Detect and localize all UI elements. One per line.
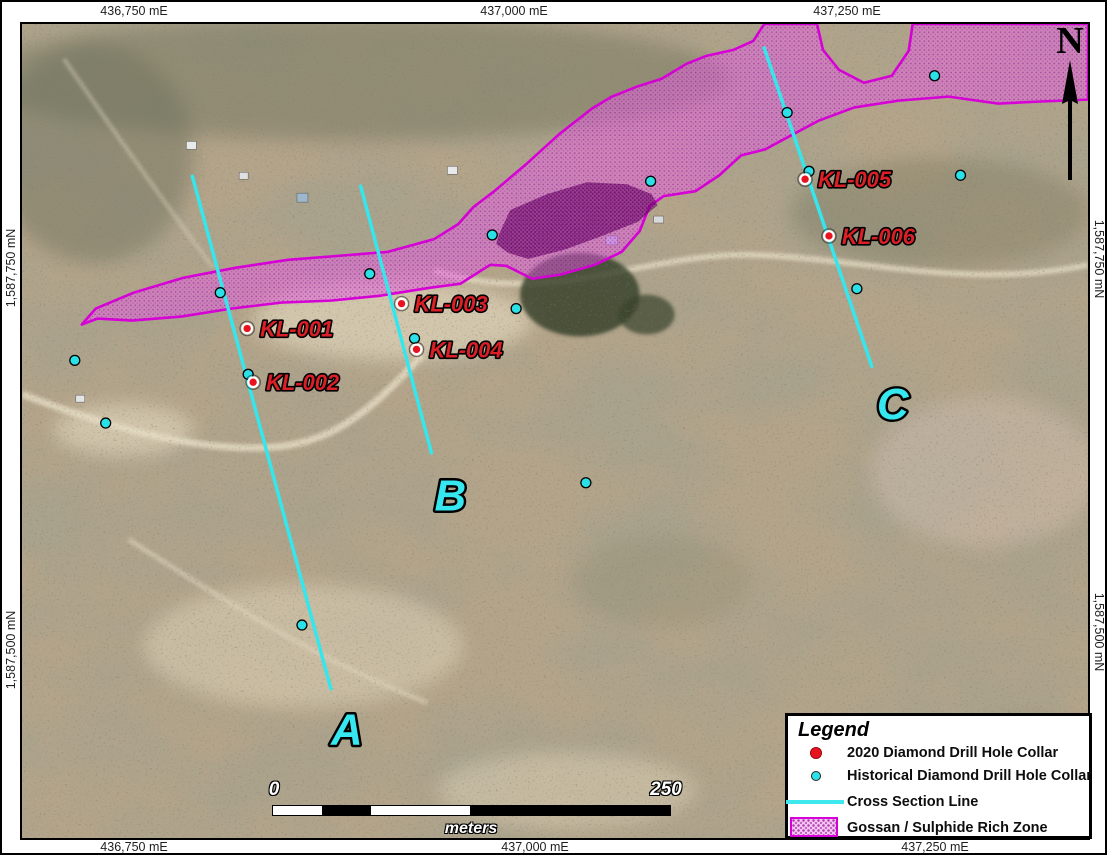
drill-hole-label-KL-004: KL-004 <box>429 337 502 362</box>
drill-hole-location-map: 436,750 mE 437,000 mE 437,250 mE 436,750… <box>0 0 1107 855</box>
historical-drill-hole <box>511 304 521 314</box>
historical-drill-hole <box>297 620 307 630</box>
historical-drill-hole <box>930 71 940 81</box>
drill-hole-label-KL-001: KL-001 <box>260 316 333 341</box>
historical-drill-hole <box>782 108 792 118</box>
grid-label-right-2: 1,587,500 mN <box>1092 593 1106 672</box>
drill-hole-label-KL-002: KL-002 <box>266 370 339 395</box>
drill-hole-KL-006 <box>824 231 834 241</box>
legend-title: Legend <box>798 719 869 742</box>
section-label-C: C <box>877 380 910 429</box>
drill-hole-label-KL-003: KL-003 <box>415 292 488 317</box>
grid-label-top-3: 437,250 mE <box>813 4 880 18</box>
drill-hole-KL-002 <box>248 377 258 387</box>
scale-zero-label: 0 <box>239 779 309 801</box>
legend: Legend 2020 Diamond Drill Hole Collar Hi… <box>785 713 1092 839</box>
legend-item-label: Historical Diamond Drill Hole Collar <box>847 768 1092 784</box>
grid-label-bottom-3: 437,250 mE <box>901 840 968 854</box>
grid-label-bottom-2: 437,000 mE <box>501 840 568 854</box>
grid-label-top-1: 436,750 mE <box>100 4 167 18</box>
legend-item-label: 2020 Diamond Drill Hole Collar <box>847 745 1058 761</box>
legend-item-label: Gossan / Sulphide Rich Zone <box>847 820 1048 836</box>
scale-bar-segments <box>272 805 671 816</box>
legend-item-2020-collar: 2020 Diamond Drill Hole Collar <box>788 742 1089 764</box>
historical-drill-hole <box>70 355 80 365</box>
legend-item-cross-section: Cross Section Line <box>788 791 1089 813</box>
drill-hole-label-KL-005: KL-005 <box>818 167 892 192</box>
drill-hole-KL-001 <box>242 324 252 334</box>
drill-hole-KL-003 <box>397 299 407 309</box>
historical-drill-hole <box>365 269 375 279</box>
grid-label-left-1: 1,587,750 mN <box>4 229 18 308</box>
legend-item-label: Cross Section Line <box>847 794 978 810</box>
drill-hole-KL-004 <box>412 345 422 355</box>
cyan-dot-icon <box>788 765 844 787</box>
red-dot-icon <box>788 742 844 764</box>
section-label-B: B <box>435 472 467 521</box>
scale-unit-label: meters <box>436 820 506 838</box>
scale-max-label: 250 <box>631 779 701 801</box>
historical-drill-hole <box>101 418 111 428</box>
cyan-line-icon <box>788 791 844 813</box>
gossan-swatch-icon <box>788 817 844 839</box>
grid-label-right-1: 1,587,750 mN <box>1092 220 1106 299</box>
drill-hole-KL-005 <box>800 174 810 184</box>
historical-drill-hole <box>955 170 965 180</box>
historical-drill-hole <box>852 284 862 294</box>
historical-drill-hole <box>215 288 225 298</box>
historical-drill-hole <box>487 230 497 240</box>
historical-drill-hole <box>581 478 591 488</box>
legend-item-gossan-zone: Gossan / Sulphide Rich Zone <box>788 817 1089 839</box>
drill-hole-label-KL-006: KL-006 <box>842 224 916 249</box>
legend-item-historical-collar: Historical Diamond Drill Hole Collar <box>788 765 1089 787</box>
grid-label-bottom-1: 436,750 mE <box>100 840 167 854</box>
section-label-A: A <box>330 705 363 754</box>
grid-label-top-2: 437,000 mE <box>480 4 547 18</box>
grid-label-left-2: 1,587,500 mN <box>4 611 18 690</box>
historical-drill-hole <box>646 176 656 186</box>
